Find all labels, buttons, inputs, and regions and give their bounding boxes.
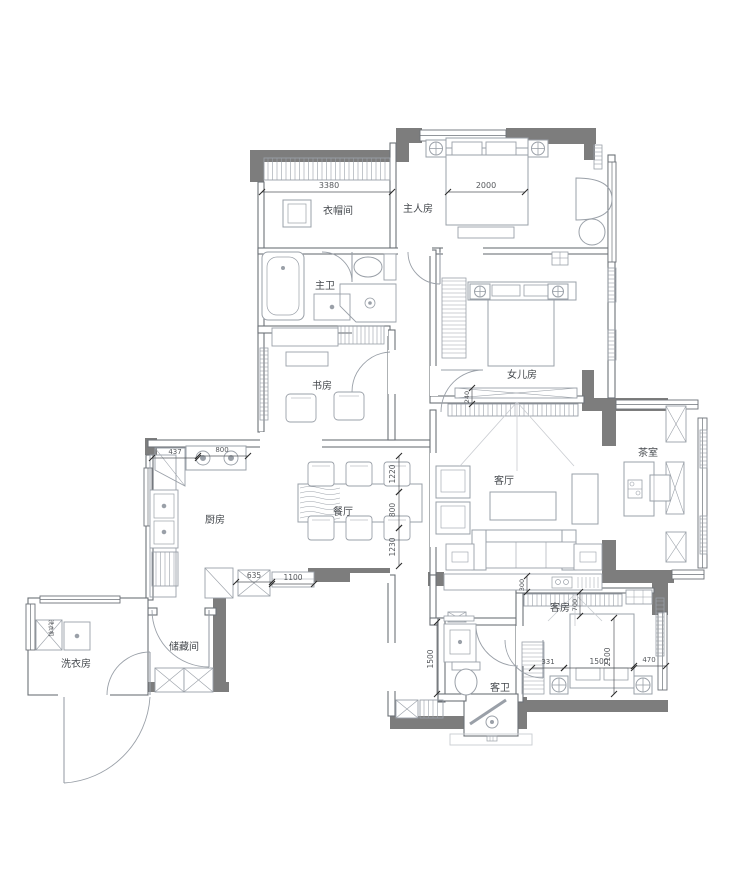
dim-gr_a: 331 bbox=[541, 658, 554, 666]
room-label-daughter: 女儿房 bbox=[507, 368, 537, 381]
room-label-guest: 客房 bbox=[550, 601, 570, 614]
dim-bed_w: 2000 bbox=[476, 181, 496, 190]
room-label-laundry: 洗衣房 bbox=[61, 657, 91, 670]
floor-plan-canvas: 3380200043780012208001230635110024030015… bbox=[0, 0, 750, 870]
room-label-guest_bath: 客卫 bbox=[490, 681, 510, 694]
floor-plan-drawing: 3380200043780012208001230635110024030015… bbox=[0, 0, 750, 870]
dim-cab_b: 1100 bbox=[283, 573, 302, 582]
room-label-living: 客厅 bbox=[494, 474, 514, 487]
room-label-storage: 储藏间 bbox=[169, 640, 199, 653]
dim-din_a: 1220 bbox=[388, 464, 397, 483]
dim-fridge_w: 437 bbox=[168, 448, 181, 456]
dim-gr_c: 470 bbox=[642, 656, 655, 664]
room-label-cloakroom: 衣帽间 bbox=[323, 204, 353, 217]
room-label-master_bath: 主卫 bbox=[315, 280, 335, 292]
room-label-kitchen: 厨房 bbox=[205, 513, 225, 526]
room-label-dining: 餐厅 bbox=[333, 505, 353, 518]
dim-din_b: 800 bbox=[388, 503, 397, 518]
dim-cab_a: 635 bbox=[247, 571, 262, 580]
partition-walls bbox=[28, 143, 654, 736]
room-label-washer: 洗衣机 bbox=[47, 620, 55, 637]
dim-gr_b: 1500 bbox=[589, 657, 608, 666]
dim-tv_d: 240 bbox=[463, 391, 471, 403]
dim-din_c: 1230 bbox=[388, 537, 397, 556]
dim-stove_w: 800 bbox=[215, 446, 228, 454]
dim-gr_top: 700 bbox=[571, 599, 579, 611]
dim-gb_h: 1500 bbox=[426, 649, 435, 668]
dim-cloak_w: 3380 bbox=[319, 181, 339, 190]
room-label-tea: 茶室 bbox=[638, 446, 658, 459]
room-label-master: 主人房 bbox=[403, 202, 433, 215]
dim-bar_d: 300 bbox=[518, 579, 526, 591]
room-label-study: 书房 bbox=[312, 379, 332, 392]
